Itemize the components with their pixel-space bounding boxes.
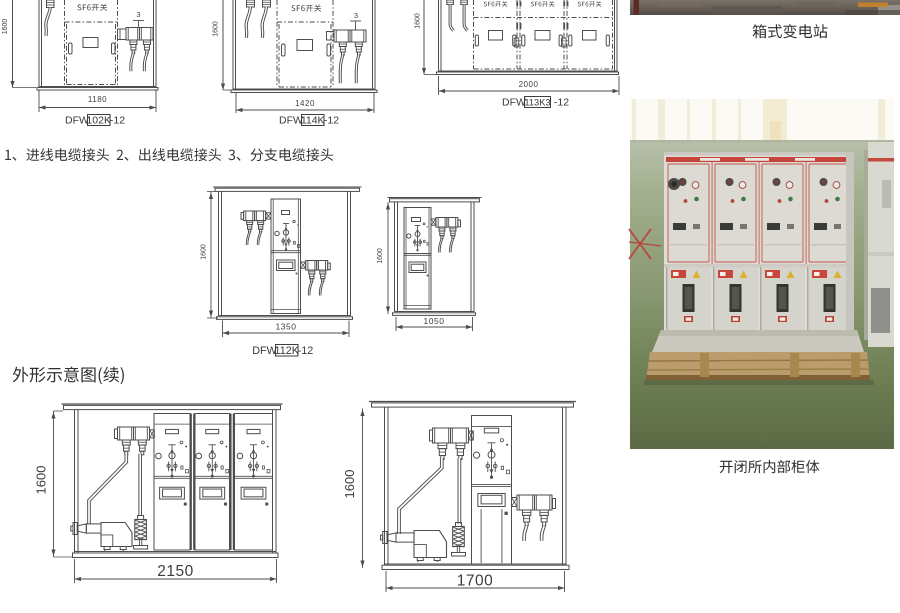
svg-text:114K: 114K — [301, 115, 325, 127]
svg-text:112K: 112K — [274, 345, 299, 357]
svg-text:3: 3 — [354, 11, 358, 20]
svg-text:2150: 2150 — [157, 563, 193, 580]
svg-text:1700: 1700 — [457, 573, 493, 590]
svg-text:1350: 1350 — [276, 322, 297, 332]
svg-text:2000: 2000 — [519, 80, 539, 89]
svg-text:1600: 1600 — [200, 244, 207, 260]
svg-text:3: 3 — [136, 10, 140, 19]
svg-text:-12: -12 — [324, 115, 339, 127]
svg-text:1600: 1600 — [213, 21, 220, 37]
svg-text:-12: -12 — [110, 115, 125, 127]
svg-text:DFW: DFW — [502, 97, 526, 109]
svg-text:1600: 1600 — [377, 248, 384, 264]
svg-text:DFW: DFW — [65, 115, 89, 127]
svg-text:1180: 1180 — [88, 95, 107, 104]
svg-text:1600: 1600 — [34, 466, 49, 495]
svg-text:1050: 1050 — [424, 316, 445, 326]
svg-text:1600: 1600 — [415, 13, 422, 29]
svg-text:-12: -12 — [298, 345, 314, 357]
svg-text:1600: 1600 — [342, 470, 357, 499]
svg-text:-12: -12 — [554, 97, 569, 109]
svg-text:DFW: DFW — [279, 115, 303, 127]
svg-text:113K3: 113K3 — [524, 97, 550, 107]
svg-text:102K: 102K — [86, 115, 111, 127]
svg-text:1600: 1600 — [2, 19, 9, 35]
svg-text:1420: 1420 — [295, 99, 315, 108]
